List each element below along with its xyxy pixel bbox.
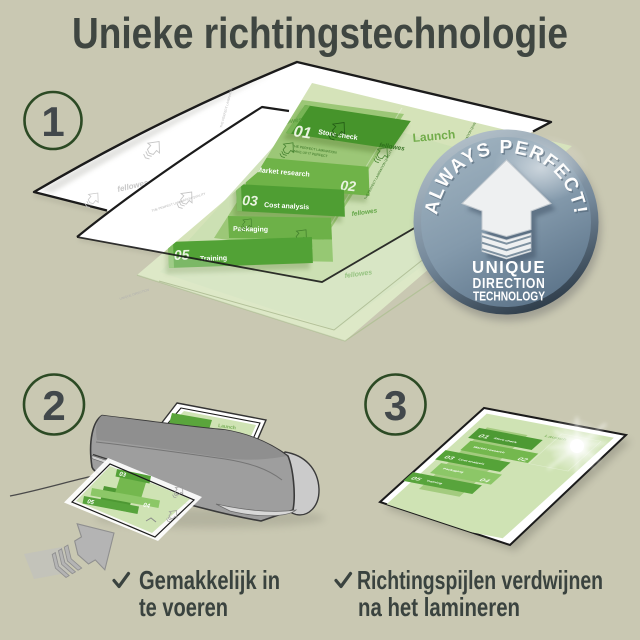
svg-text:2: 2: [42, 382, 65, 429]
svg-text:01: 01: [292, 123, 312, 142]
svg-text:Gemakkelijk in: Gemakkelijk in: [139, 565, 280, 595]
svg-text:na het lamineren: na het lamineren: [358, 592, 520, 622]
svg-text:03: 03: [242, 192, 259, 209]
svg-text:te voeren: te voeren: [139, 592, 228, 622]
svg-text:3: 3: [384, 382, 407, 429]
svg-text:Unieke richtingstechnologie: Unieke richtingstechnologie: [72, 9, 568, 58]
svg-text:TECHNOLOGY: TECHNOLOGY: [473, 290, 546, 304]
svg-text:1: 1: [41, 98, 64, 145]
svg-text:Packaging: Packaging: [233, 226, 268, 234]
svg-text:UNIQUE: UNIQUE: [472, 257, 546, 277]
svg-text:Richtingspijlen verdwijnen: Richtingspijlen verdwijnen: [357, 565, 603, 595]
